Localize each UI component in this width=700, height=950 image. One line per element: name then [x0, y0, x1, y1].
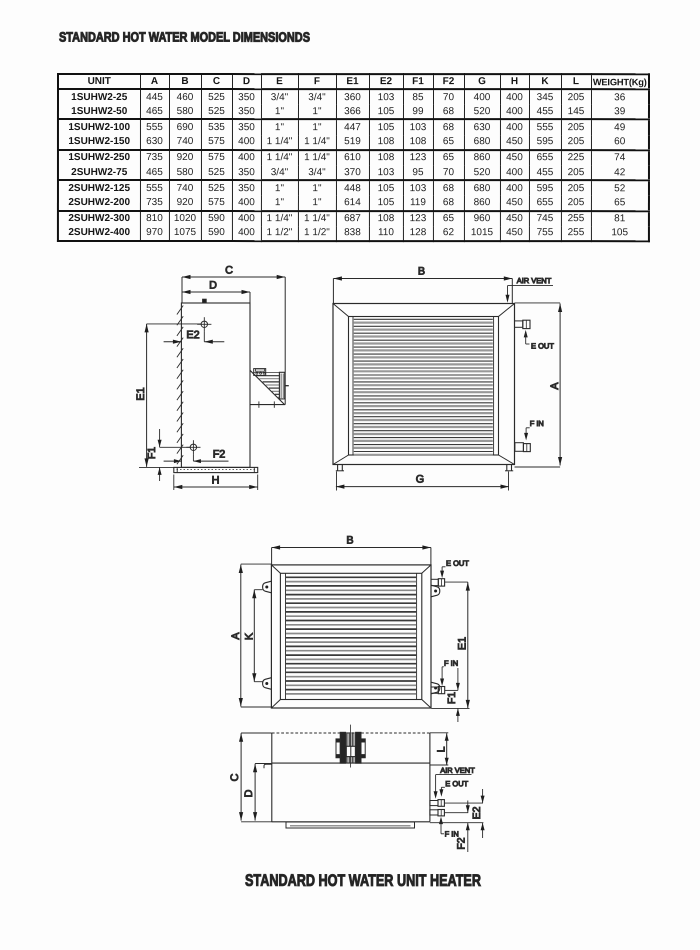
svg-text:F IN: F IN	[530, 419, 544, 428]
svg-text:C: C	[229, 773, 241, 781]
svg-text:D: D	[209, 279, 217, 291]
svg-text:K: K	[244, 632, 256, 640]
svg-text:D: D	[243, 789, 255, 797]
svg-text:F1: F1	[446, 692, 458, 704]
svg-text:E OUT: E OUT	[445, 779, 468, 788]
svg-text:A: A	[230, 632, 242, 640]
svg-text:F IN: F IN	[444, 659, 458, 668]
svg-text:C: C	[225, 264, 233, 276]
svg-text:F1: F1	[146, 447, 158, 459]
svg-text:H: H	[212, 474, 220, 486]
svg-text:A: A	[549, 382, 561, 390]
svg-text:G: G	[416, 473, 424, 485]
svg-text:B: B	[346, 534, 353, 546]
svg-text:AIR VENT: AIR VENT	[440, 766, 475, 775]
svg-text:L: L	[436, 746, 448, 752]
svg-text:F2: F2	[213, 448, 226, 460]
svg-text:E OUT: E OUT	[446, 559, 469, 568]
svg-text:STANDARD HOT WATER MODEL DIMEN: STANDARD HOT WATER MODEL DIMENSIONDS	[59, 30, 310, 45]
svg-text:B: B	[418, 265, 425, 277]
svg-text:STANDARD HOT WATER UNIT HEATER: STANDARD HOT WATER UNIT HEATER	[245, 872, 481, 890]
svg-text:E2: E2	[186, 329, 199, 341]
svg-text:AIR VENT: AIR VENT	[517, 276, 552, 285]
svg-text:E OUT: E OUT	[531, 342, 554, 351]
svg-text:F2: F2	[455, 837, 467, 849]
svg-text:E1: E1	[456, 637, 468, 650]
svg-text:E2: E2	[471, 806, 483, 819]
svg-text:F IN: F IN	[445, 830, 459, 839]
svg-text:E1: E1	[135, 387, 147, 400]
